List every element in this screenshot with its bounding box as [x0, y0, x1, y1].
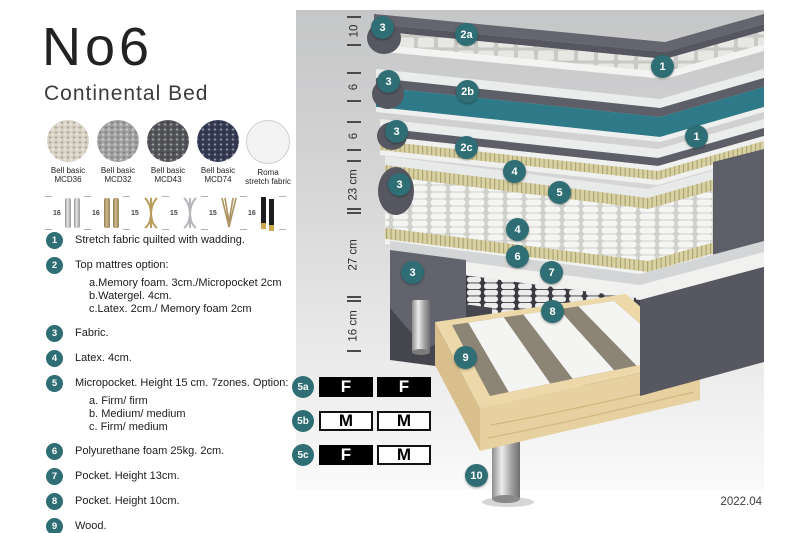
- dimension: 6: [340, 72, 368, 102]
- feature-badge: 9: [46, 518, 63, 533]
- leg-option: 16: [92, 194, 122, 232]
- feature-text: Fabric.: [75, 324, 109, 342]
- leg-option: 16: [53, 194, 83, 232]
- feature-badge: 6: [46, 443, 63, 460]
- feature-text: Polyurethane foam 25kg. 2cm.: [75, 442, 224, 460]
- dimension: 16 cm: [340, 300, 368, 352]
- layer-badge: 3: [385, 120, 408, 143]
- feature-subitem: a.Memory foam. 3cm./Micropocket 2cm: [89, 277, 298, 290]
- feature-subitem: b. Medium/ medium: [89, 408, 298, 421]
- leg-option: 15: [209, 194, 239, 232]
- divider: [44, 193, 53, 233]
- cross-legs-silver-icon: [180, 194, 200, 232]
- divider: [239, 193, 248, 233]
- feature-text: Wood.: [75, 517, 107, 533]
- dimension: 23 cm: [340, 160, 368, 210]
- firmness-cell: M: [377, 411, 431, 431]
- tick: [347, 208, 361, 210]
- firmness-row: 5b M M: [292, 411, 431, 431]
- dimension-label: 6: [340, 121, 368, 151]
- firmness-row-badge: 5c: [292, 444, 314, 466]
- bed-infographic: No6 Continental Bed Bell basicMCD36 Bell…: [0, 0, 800, 533]
- feature-item: 7 Pocket. Height 13cm.: [46, 467, 298, 485]
- feature-item: 6 Polyurethane foam 25kg. 2cm.: [46, 442, 298, 460]
- dimension-label: 27 cm: [340, 212, 368, 298]
- hairpin-legs-gold-icon: [219, 194, 239, 232]
- tick: [347, 100, 361, 102]
- fabric-swatch-disc: [197, 120, 239, 162]
- feature-subitem: c. Firm/ medium: [89, 421, 298, 434]
- product-title: No6: [42, 16, 153, 78]
- feature-badge: 4: [46, 350, 63, 367]
- feature-text: Pocket. Height 10cm.: [75, 492, 180, 510]
- tick: [347, 44, 361, 46]
- version-label: 2022.04: [720, 496, 762, 508]
- firmness-table: 5a F F 5b M M 5c F M: [292, 377, 431, 479]
- firmness-cell: F: [319, 445, 373, 465]
- feature-badge: 8: [46, 493, 63, 510]
- feature-subitem: b.Watergel. 4cm.: [89, 290, 298, 303]
- dimension-label: 10: [340, 16, 368, 46]
- leg-option: 15: [170, 194, 200, 232]
- divider: [200, 193, 209, 233]
- leg-height: 15: [209, 210, 217, 217]
- fabric-swatch-disc: [147, 120, 189, 162]
- fabric-swatch: Bell basicMCD36: [45, 120, 91, 186]
- feature-item: 9 Wood.: [46, 517, 298, 533]
- feature-item: 5 Micropocket. Height 15 cm. 7zones. Opt…: [46, 374, 298, 392]
- dimension: 27 cm: [340, 212, 368, 298]
- layer-badge: 4: [506, 218, 529, 241]
- firmness-row-badge: 5a: [292, 376, 314, 398]
- leg-height: 16: [53, 210, 61, 217]
- feature-item: 8 Pocket. Height 10cm.: [46, 492, 298, 510]
- firmness-row: 5a F F: [292, 377, 431, 397]
- feature-badge: 1: [46, 232, 63, 249]
- feature-badge: 5: [46, 375, 63, 392]
- feature-text: Micropocket. Height 15 cm. 7zones. Optio…: [75, 374, 288, 392]
- feature-suboptions: a. Firm/ firm b. Medium/ medium c. Firm/…: [89, 395, 298, 434]
- leg-options-row: 16 16 15 15: [44, 189, 287, 237]
- leg-option: 16: [248, 194, 278, 232]
- dimension-label: 6: [340, 72, 368, 102]
- fabric-label: Romastretch fabric: [245, 168, 291, 186]
- dimension-label: 23 cm: [340, 160, 368, 210]
- feature-subitem: a. Firm/ firm: [89, 395, 298, 408]
- fabric-swatch: Bell basicMCD32: [95, 120, 141, 186]
- tick: [347, 350, 361, 352]
- fabric-swatch: Romastretch fabric: [245, 120, 291, 186]
- layer-badge: 9: [454, 346, 477, 369]
- layer-badge: 1: [685, 125, 708, 148]
- layer-badge: 6: [506, 245, 529, 268]
- feature-item: 2 Top mattres option:: [46, 256, 298, 274]
- fabric-swatch-disc: [97, 120, 139, 162]
- product-subtitle: Continental Bed: [44, 82, 208, 106]
- layer-badge: 8: [541, 300, 564, 323]
- fabric-swatch: Bell basicMCD74: [195, 120, 241, 186]
- fabric-swatch-row: Bell basicMCD36 Bell basicMCD32 Bell bas…: [45, 120, 291, 186]
- feature-badge: 7: [46, 468, 63, 485]
- divider: [83, 193, 92, 233]
- cylinder-legs-silver-icon: [63, 194, 83, 232]
- feature-list: 1 Stretch fabric quilted with wadding. 2…: [46, 231, 298, 533]
- divider: [161, 193, 170, 233]
- leg-option: 15: [131, 194, 161, 232]
- feature-text: Pocket. Height 13cm.: [75, 467, 180, 485]
- leg-height: 15: [131, 210, 139, 217]
- divider: [122, 193, 131, 233]
- stick-legs-black-icon: [258, 194, 278, 232]
- feature-item: 4 Latex. 4cm.: [46, 349, 298, 367]
- layer-badge: 1: [651, 55, 674, 78]
- cylinder-legs-gold-icon: [102, 194, 122, 232]
- layer-badge: 2c: [455, 136, 478, 159]
- fabric-label: Bell basicMCD36: [51, 166, 85, 184]
- firmness-row: 5c F M: [292, 445, 431, 465]
- firmness-cell: M: [319, 411, 373, 431]
- feature-item: 3 Fabric.: [46, 324, 298, 342]
- tick: [347, 149, 361, 151]
- firmness-row-badge: 5b: [292, 410, 314, 432]
- layer-badge: 2a: [455, 23, 478, 46]
- cross-legs-gold-icon: [141, 194, 161, 232]
- layer-badge: 3: [401, 261, 424, 284]
- firmness-cell: M: [377, 445, 431, 465]
- fabric-label: Bell basicMCD32: [101, 166, 135, 184]
- feature-item: 1 Stretch fabric quilted with wadding.: [46, 231, 298, 249]
- feature-text: Latex. 4cm.: [75, 349, 132, 367]
- leg-height: 16: [92, 210, 100, 217]
- layer-badge: 10: [465, 464, 488, 487]
- layer-badge: 3: [371, 16, 394, 39]
- fabric-label: Bell basicMCD74: [201, 166, 235, 184]
- layer-badge: 3: [388, 173, 411, 196]
- divider: [278, 193, 287, 233]
- feature-subitem: c.Latex. 2cm./ Memory foam 2cm: [89, 303, 298, 316]
- dimension: 10: [340, 16, 368, 46]
- fabric-label: Bell basicMCD43: [151, 166, 185, 184]
- firmness-cell: F: [377, 377, 431, 397]
- layer-badge: 4: [503, 160, 526, 183]
- layer-badge: 3: [377, 70, 400, 93]
- dimension: 6: [340, 121, 368, 151]
- tick: [347, 296, 361, 298]
- feature-suboptions: a.Memory foam. 3cm./Micropocket 2cm b.Wa…: [89, 277, 298, 316]
- fabric-swatch: Bell basicMCD43: [145, 120, 191, 186]
- feature-text: Top mattres option:: [75, 256, 169, 274]
- leg-height: 16: [248, 210, 256, 217]
- feature-text: Stretch fabric quilted with wadding.: [75, 231, 245, 249]
- feature-badge: 3: [46, 325, 63, 342]
- fabric-swatch-disc: [246, 120, 290, 164]
- fabric-swatch-disc: [47, 120, 89, 162]
- layer-badge: 2b: [456, 80, 479, 103]
- leg-height: 15: [170, 210, 178, 217]
- feature-badge: 2: [46, 257, 63, 274]
- dimension-label: 16 cm: [340, 300, 368, 352]
- layer-badge: 5: [548, 181, 571, 204]
- layer-badge: 7: [540, 261, 563, 284]
- firmness-cell: F: [319, 377, 373, 397]
